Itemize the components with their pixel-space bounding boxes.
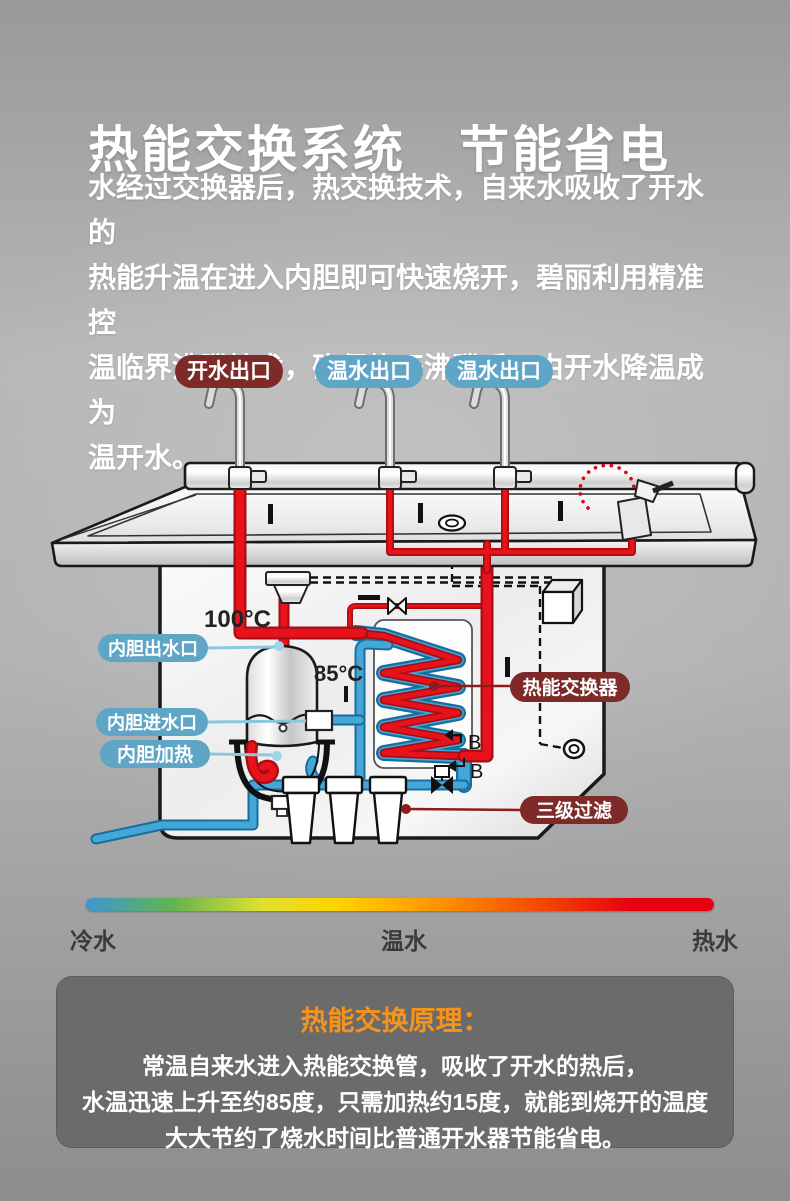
- temperature-gradient-bar: [86, 898, 714, 911]
- svg-text:内胆出水口: 内胆出水口: [108, 638, 198, 659]
- svg-text:温水出口: 温水出口: [457, 360, 541, 383]
- counter-drain: [439, 516, 465, 531]
- principle-line: 大大节约了烧水时间比普通开水器节能省电。: [57, 1120, 733, 1156]
- b-label-1: B: [468, 732, 481, 754]
- principle-body: 常温自来水进入热能交换管，吸收了开水的热后， 水温迅速上升至约85度，只需加热约…: [57, 1048, 733, 1156]
- index-tick-coil: [505, 657, 510, 677]
- index-tick-tank: [344, 686, 348, 702]
- svg-text:内胆加热: 内胆加热: [117, 743, 193, 766]
- counter-slot-3: [558, 501, 563, 521]
- label-cold-water: 冷水: [70, 922, 116, 956]
- faucet-boiling: [209, 382, 240, 472]
- svg-text:温水出口: 温水出口: [327, 360, 411, 383]
- tank-vent-hole: [280, 725, 287, 732]
- label-warm-water: 温水: [381, 922, 427, 956]
- temp-85c: 85°C: [314, 661, 363, 686]
- temperature-scale-labels: 冷水 温水 热水: [70, 922, 738, 956]
- svg-text:开水出口: 开水出口: [187, 360, 271, 383]
- label-hot-water: 热水: [692, 922, 738, 956]
- tank-inlet-fitting: [306, 711, 332, 730]
- filter-dot: [401, 804, 411, 814]
- heater-dot: [272, 751, 282, 761]
- temp-100c: 100°C: [204, 606, 271, 633]
- outlet-pills: 开水出口 温水出口 温水出口: [175, 355, 553, 388]
- counter-slot-1: [268, 504, 273, 524]
- principle-line: 水温迅速上升至约85度，只需加热约15度，就能到烧开的温度: [57, 1084, 733, 1120]
- system-diagram: B B: [0, 330, 790, 890]
- faucets: [209, 382, 505, 472]
- svg-text:内胆进水口: 内胆进水口: [107, 712, 197, 733]
- faucet-warm-2: [474, 382, 505, 472]
- electrical-box: [543, 580, 582, 623]
- svg-text:三级过滤: 三级过滤: [536, 799, 612, 822]
- faucet-warm-1: [359, 382, 390, 472]
- svg-text:热能交换器: 热能交换器: [522, 676, 618, 699]
- principle-line: 常温自来水进入热能交换管，吸收了开水的热后，: [57, 1048, 733, 1084]
- principle-panel: 热能交换原理： 常温自来水进入热能交换管，吸收了开水的热后， 水温迅速上升至约8…: [56, 976, 734, 1148]
- counter-slot-2: [418, 503, 423, 523]
- principle-title: 热能交换原理：: [57, 999, 733, 1038]
- grommet: [564, 740, 584, 758]
- backsplash-rail: [185, 463, 742, 489]
- heat-exchanger-dot: [429, 681, 439, 691]
- valve-dash-mark: [358, 595, 380, 600]
- filter-cartridges: [283, 777, 406, 843]
- tank-outlet-dot: [274, 641, 284, 651]
- b-label-2: B: [470, 761, 483, 783]
